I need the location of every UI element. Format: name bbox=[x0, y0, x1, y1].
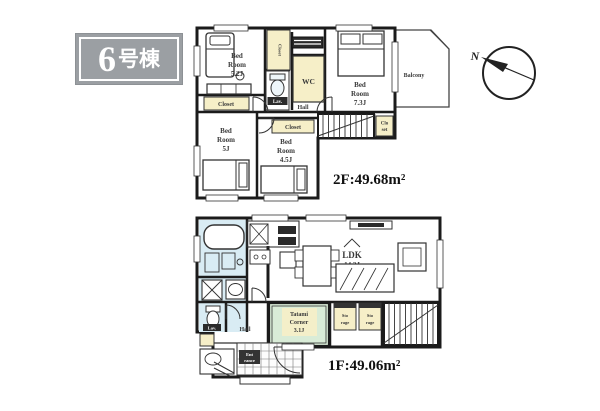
closet-d-label: Closet bbox=[285, 125, 301, 131]
closet-stairs: Clo set bbox=[376, 116, 393, 136]
porch-step bbox=[240, 377, 290, 384]
bedroom-d-name1: Bed bbox=[280, 138, 292, 146]
shoe-cabinet-icon bbox=[200, 334, 214, 346]
area-label-2f: 2F:49.68m² bbox=[333, 172, 406, 188]
hall-1f-label: Hall bbox=[239, 327, 250, 333]
closet-vertical: Closet bbox=[267, 30, 290, 70]
stairs-2f bbox=[318, 114, 374, 138]
toilet-2f-label: Lav. bbox=[273, 100, 283, 105]
wc-room: WC bbox=[293, 56, 324, 102]
storage-b-line1: Sto bbox=[367, 313, 374, 318]
closet-vertical-label: Closet bbox=[278, 44, 283, 56]
storage-a-line1: Sto bbox=[342, 313, 349, 318]
wc-label: WC bbox=[302, 77, 315, 86]
bedroom-b-name1: Bed bbox=[354, 81, 366, 89]
double-bed-icon bbox=[338, 31, 384, 76]
bedroom-c: Bed Room 5J bbox=[203, 127, 249, 190]
storage-b-line2: rage bbox=[366, 320, 375, 325]
fridge-icon bbox=[280, 252, 296, 268]
stairs-1f bbox=[384, 303, 438, 345]
washing-machine-icon bbox=[202, 280, 222, 300]
tatami-name2: Corner bbox=[290, 320, 309, 326]
area-label-1f: 1F:49.06m² bbox=[328, 358, 401, 374]
bedroom-b-size: 7.3J bbox=[354, 99, 367, 107]
closet-strip-label: Closet bbox=[218, 102, 234, 108]
hall-2f-label: Hall bbox=[297, 105, 308, 111]
toilet-room-2f: Lav. bbox=[266, 71, 289, 110]
bedroom-b: Bed Room 7.3J bbox=[338, 31, 384, 107]
bedroom-d-size: 4.5J bbox=[280, 156, 293, 164]
toilet-1f-label: Lav. bbox=[208, 326, 216, 331]
shelf-icon bbox=[292, 37, 323, 48]
bedroom-c-name2: Room bbox=[217, 136, 235, 144]
roof-mark-icon bbox=[344, 239, 360, 247]
balcony-label: Balcony bbox=[404, 73, 425, 79]
toilet-tank-icon bbox=[270, 74, 285, 80]
compass-circle bbox=[483, 47, 535, 99]
sofa-icon bbox=[336, 264, 394, 292]
tv-board-icon bbox=[350, 221, 392, 229]
tatami-name1: Tatami bbox=[290, 312, 308, 318]
ldk-room: LDK 14.2J bbox=[295, 221, 426, 292]
stove-icon bbox=[278, 226, 296, 245]
dining-table-icon bbox=[295, 246, 339, 286]
storage-b: Sto rage bbox=[359, 303, 381, 330]
storage-a: Sto rage bbox=[334, 303, 356, 330]
dresser-icon bbox=[207, 84, 251, 94]
bedroom-a-name2: Room bbox=[228, 61, 246, 69]
bedroom-d: Closet Bed Room 4.5J bbox=[261, 120, 314, 193]
ldk-name: LDK bbox=[342, 250, 362, 260]
bathtub-icon bbox=[204, 225, 244, 249]
bedroom-a-size: 5.2J bbox=[231, 70, 244, 78]
storage-a-line2: rage bbox=[341, 320, 350, 325]
closet-strip: Closet bbox=[204, 97, 249, 110]
entrance-line1: Ent bbox=[246, 352, 254, 357]
bed-icon-c bbox=[203, 160, 249, 190]
floor-plan-2f: Balcony Closet Closet Lav. bbox=[194, 25, 449, 201]
closet-stairs-line1: Clo bbox=[381, 122, 389, 127]
island-counter-icon bbox=[250, 250, 270, 264]
toilet-bowl-icon bbox=[271, 80, 284, 96]
tatami-corner: Tatami Corner 3.1J bbox=[269, 303, 329, 346]
single-bed-icon bbox=[206, 33, 234, 77]
floor-plan-drawing: Balcony Closet Closet Lav. bbox=[0, 0, 600, 411]
closet-stairs-line2: set bbox=[382, 128, 388, 133]
bedroom-b-name2: Room bbox=[351, 90, 369, 98]
entrance-line2: rance bbox=[244, 358, 255, 363]
balcony: Balcony bbox=[395, 30, 449, 107]
floorplan-page: 6 号棟 Balcony Closet Clo bbox=[0, 0, 600, 411]
tatami-size: 3.1J bbox=[294, 328, 305, 334]
floor-plan-1f: Lav. bbox=[194, 215, 443, 384]
kitchen bbox=[247, 221, 299, 268]
bedroom-c-name1: Bed bbox=[220, 127, 232, 135]
bed-icon-d bbox=[261, 166, 307, 193]
compass: N bbox=[470, 47, 535, 99]
side-table-icon bbox=[398, 243, 426, 271]
bedroom-a-name1: Bed bbox=[231, 52, 243, 60]
bedroom-d-name2: Room bbox=[277, 147, 295, 155]
bedroom-a: Bed Room 5.2J bbox=[206, 33, 251, 94]
entry-vanity-icon bbox=[200, 349, 234, 376]
north-label: N bbox=[470, 49, 481, 63]
bedroom-c-size: 5J bbox=[223, 145, 231, 153]
sink-icon bbox=[250, 224, 268, 244]
vanity-icon bbox=[226, 280, 245, 299]
